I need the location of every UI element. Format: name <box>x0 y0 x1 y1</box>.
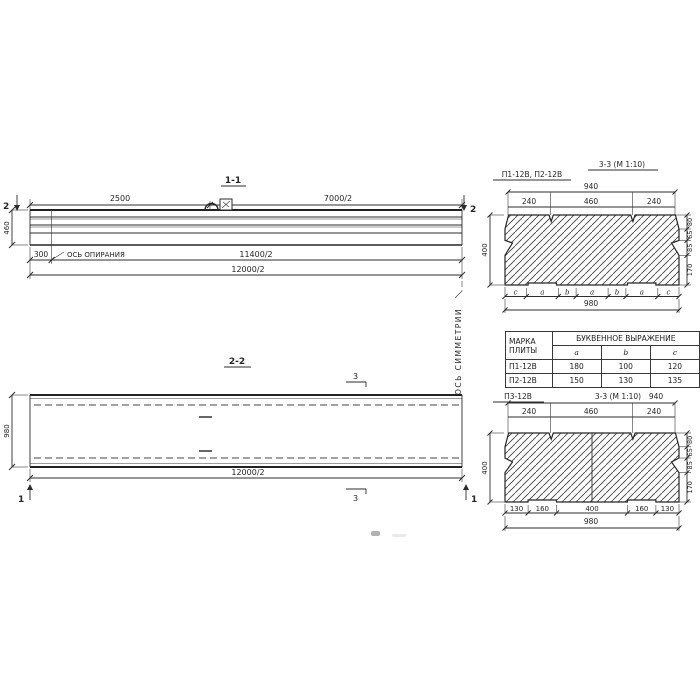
table-col-b: b <box>601 346 650 360</box>
svg-text:980: 980 <box>584 299 599 308</box>
view-2-2-title: 2-2 <box>229 357 245 367</box>
section-bot-label: П3-12В <box>504 392 532 401</box>
dim-plan-length: 12000/2 <box>27 468 465 482</box>
svg-text:170: 170 <box>686 264 694 276</box>
section-outline <box>505 215 679 285</box>
table-col-a: a <box>552 346 601 360</box>
svg-text:a: a <box>540 289 544 297</box>
beam-side-view <box>30 210 462 245</box>
svg-text:2: 2 <box>3 202 9 212</box>
svg-text:980: 980 <box>584 517 599 526</box>
cross-section-p1-p2: П1-12В, П2-12В 3-3 (М 1:10) 940 240 460 … <box>480 155 700 330</box>
dim-top-band: 240 460 240 <box>506 401 678 434</box>
plan-view-body <box>30 395 462 467</box>
svg-text:460: 460 <box>3 221 11 234</box>
svg-text:12000/2: 12000/2 <box>231 468 264 477</box>
dim-height-left: 400 <box>481 213 504 288</box>
svg-text:c: c <box>514 289 518 297</box>
section-top-label: П1-12В, П2-12В <box>502 170 562 179</box>
svg-text:940: 940 <box>584 182 599 191</box>
cross-section-p3: П3-12В 3-3 (М 1:10) 940 240 460 240 400 <box>480 388 700 553</box>
svg-text:3: 3 <box>353 494 358 503</box>
svg-text:65: 65 <box>686 231 694 239</box>
svg-text:240: 240 <box>647 407 662 416</box>
dim-beam-height: 460 <box>3 207 28 248</box>
blueprint-sheet: 1-1 2500 7000/2 2 2 <box>0 0 700 700</box>
cut-marker-3-top: 3 <box>346 372 366 387</box>
dim-940-label: 940 <box>649 392 664 401</box>
cut-marker-3-bottom: 3 <box>346 489 366 503</box>
dim-top-band: 940 240 460 240 <box>506 182 678 215</box>
svg-text:65: 65 <box>686 448 694 456</box>
letters-band: c a b a b a c <box>503 287 682 299</box>
svg-text:80: 80 <box>686 436 694 444</box>
cut-marker-2-right: 2 <box>461 195 476 215</box>
svg-text:85: 85 <box>686 244 694 252</box>
svg-text:240: 240 <box>647 197 662 206</box>
dim-12000-2: 12000/2 <box>231 265 264 274</box>
svg-text:980: 980 <box>3 424 11 437</box>
svg-text:b: b <box>565 289 570 297</box>
svg-text:85: 85 <box>686 461 694 469</box>
dim-plan-width: 980 <box>3 392 28 470</box>
svg-text:a: a <box>590 289 594 297</box>
marks-table: МАРКАПЛИТЫ БУКВЕННОЕ ВЫРАЖЕНИЕ a b c П1-… <box>505 331 700 388</box>
svg-text:a: a <box>640 289 644 297</box>
svg-text:240: 240 <box>522 197 537 206</box>
dim-row-support: 300 ОСЬ ОПИРАНИЯ 11400/2 <box>27 250 465 263</box>
svg-text:460: 460 <box>584 407 599 416</box>
dim-300: 300 <box>34 250 49 259</box>
svg-text:170: 170 <box>686 481 694 493</box>
dim-bottom-band: 130 160 400 160 130 <box>503 504 682 516</box>
longitudinal-views: 1-1 2500 7000/2 2 2 <box>0 155 480 550</box>
svg-text:400: 400 <box>481 243 489 256</box>
svg-text:c: c <box>666 289 670 297</box>
dim-2500: 2500 <box>110 194 130 203</box>
dim-top-span: 2500 7000/2 <box>27 194 465 210</box>
svg-text:3: 3 <box>353 372 358 381</box>
table-header-group: БУКВЕННОЕ ВЫРАЖЕНИЕ <box>552 332 699 346</box>
dim-bottom-overall: 980 <box>503 299 682 313</box>
svg-text:400: 400 <box>481 461 489 474</box>
table-row: П2-12В 150 130 135 <box>506 374 700 388</box>
symmetry-axis: ОСЬ СИММЕТРИИ <box>454 281 463 395</box>
dim-7000-2: 7000/2 <box>324 194 352 203</box>
cut-marker-1-right: 1 <box>463 484 477 505</box>
dim-bottom-overall: 980 <box>503 516 682 531</box>
svg-text:460: 460 <box>584 197 599 206</box>
support-axis-label: ОСЬ ОПИРАНИЯ <box>67 251 125 259</box>
section-top-title: 3-3 (М 1:10) <box>599 160 645 169</box>
svg-text:1: 1 <box>471 495 477 505</box>
cut-marker-2-left: 2 <box>3 195 20 212</box>
svg-text:b: b <box>615 289 620 297</box>
svg-text:2: 2 <box>470 205 476 215</box>
svg-text:130: 130 <box>510 505 523 513</box>
svg-text:240: 240 <box>522 407 537 416</box>
svg-text:160: 160 <box>635 505 648 513</box>
dim-height-left: 400 <box>481 431 504 505</box>
svg-text:80: 80 <box>686 218 694 226</box>
cut-marker-1-left: 1 <box>18 484 33 505</box>
dim-11400-2: 11400/2 <box>239 250 272 259</box>
symmetry-axis-label: ОСЬ СИММЕТРИИ <box>454 308 463 395</box>
scan-smudge <box>371 531 380 536</box>
view-1-1-title: 1-1 <box>225 176 241 186</box>
svg-text:1: 1 <box>18 495 24 505</box>
table-header-mark: МАРКАПЛИТЫ <box>506 332 553 360</box>
section-bot-title: 3-3 (М 1:10) <box>595 392 641 401</box>
scan-smudge <box>392 534 406 537</box>
lifting-loop <box>205 199 232 210</box>
svg-text:130: 130 <box>661 505 674 513</box>
svg-text:400: 400 <box>585 505 598 513</box>
table-col-c: c <box>650 346 699 360</box>
svg-text:160: 160 <box>536 505 549 513</box>
table-row: П1-12В 180 100 120 <box>506 360 700 374</box>
